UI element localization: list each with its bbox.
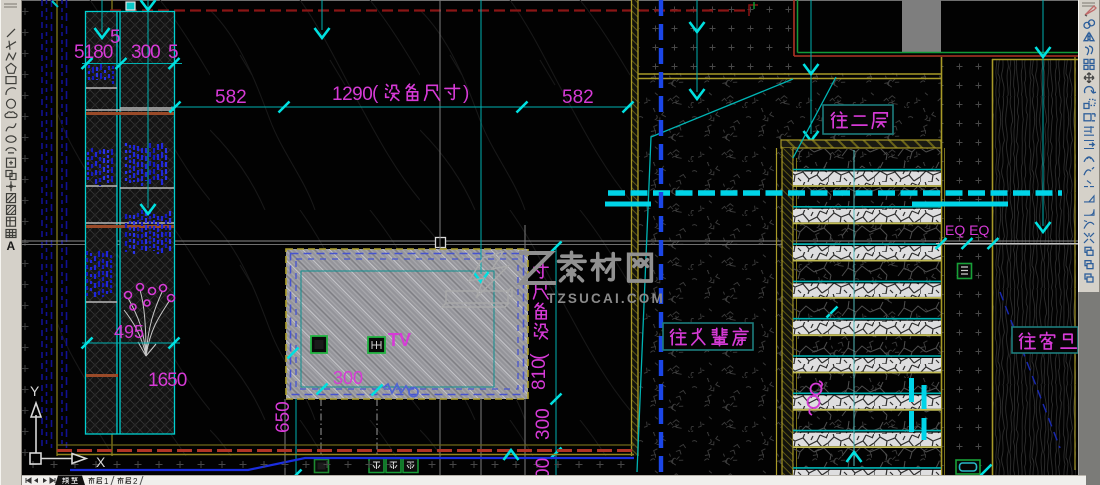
svg-text:TZSUCAI.COM: TZSUCAI.COM (547, 291, 665, 306)
svg-text:): ) (463, 83, 469, 104)
svg-text:582: 582 (215, 87, 247, 108)
svg-text:5180: 5180 (74, 42, 113, 63)
svg-text:1650: 1650 (148, 370, 187, 391)
svg-text:TV: TV (388, 330, 411, 350)
svg-text:(: ( (372, 83, 379, 104)
svg-text:582: 582 (562, 87, 594, 108)
svg-text:495: 495 (114, 322, 144, 342)
svg-text:810: 810 (529, 358, 550, 390)
svg-text:EQ EQ: EQ EQ (945, 222, 989, 238)
svg-text:2: 2 (133, 477, 138, 485)
svg-text:(: ( (528, 353, 550, 360)
svg-text:1290: 1290 (332, 84, 372, 105)
svg-text:300: 300 (533, 408, 554, 440)
svg-text:X: X (96, 454, 106, 470)
svg-text:300: 300 (131, 42, 160, 63)
svg-text:1: 1 (104, 477, 109, 485)
svg-text:300: 300 (333, 368, 363, 388)
svg-text:A: A (7, 239, 16, 253)
svg-text:Y: Y (30, 383, 40, 399)
svg-text:5: 5 (168, 42, 179, 63)
svg-text:650: 650 (273, 401, 294, 433)
